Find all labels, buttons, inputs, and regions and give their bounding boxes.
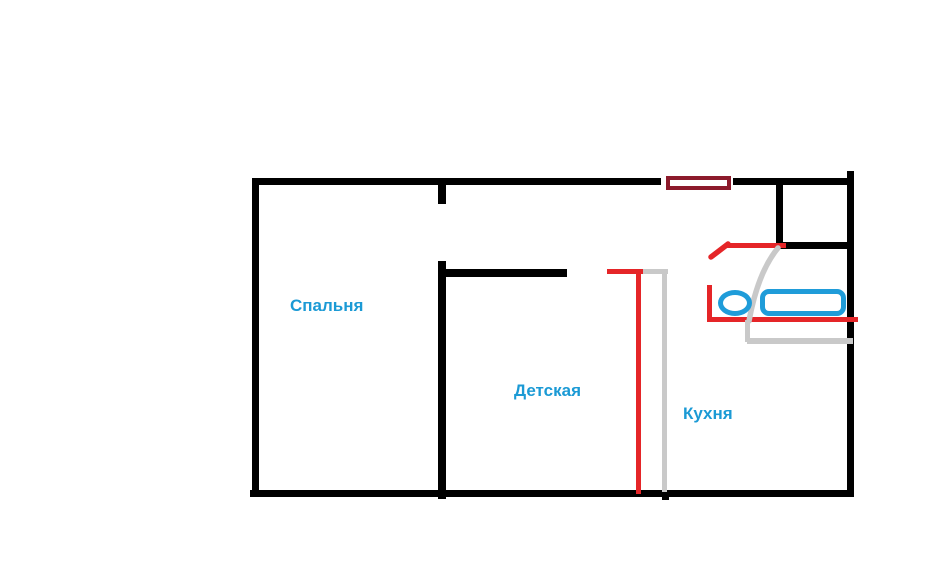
outer-wall-top-left-segment	[252, 178, 661, 185]
kidsroom-label: Детская	[514, 382, 581, 400]
old-bathroom-wall-horizontal	[776, 242, 854, 249]
bedroom-doorway-wall-stub	[438, 183, 446, 204]
kidsroom-top-wall	[443, 269, 567, 277]
toilet-icon	[718, 290, 752, 316]
outer-wall-left	[252, 178, 259, 497]
outer-wall-top-right-segment	[733, 178, 853, 185]
old-bathroom-wall-vertical	[776, 183, 783, 249]
outer-wall-bottom	[250, 490, 853, 497]
bedroom-kidsroom-wall	[438, 261, 446, 499]
window-vent-marker	[666, 176, 731, 190]
red-wall-bathroom-bottom	[707, 317, 858, 322]
gray-wall-corridor-vertical	[662, 269, 667, 492]
bathtub-icon	[760, 289, 846, 316]
bedroom-label: Спальня	[290, 297, 363, 315]
floor-plan-canvas: Спальня Детская Кухня	[0, 0, 949, 564]
red-wall-kidsroom-vertical	[636, 269, 641, 494]
gray-wall-bathroom-horizontal	[747, 338, 853, 344]
curves-overlay	[0, 0, 949, 564]
bottom-wall-nub	[662, 495, 669, 500]
outer-wall-right	[847, 171, 854, 497]
kitchen-label: Кухня	[683, 405, 733, 423]
red-wall-bathroom-top	[725, 243, 786, 248]
